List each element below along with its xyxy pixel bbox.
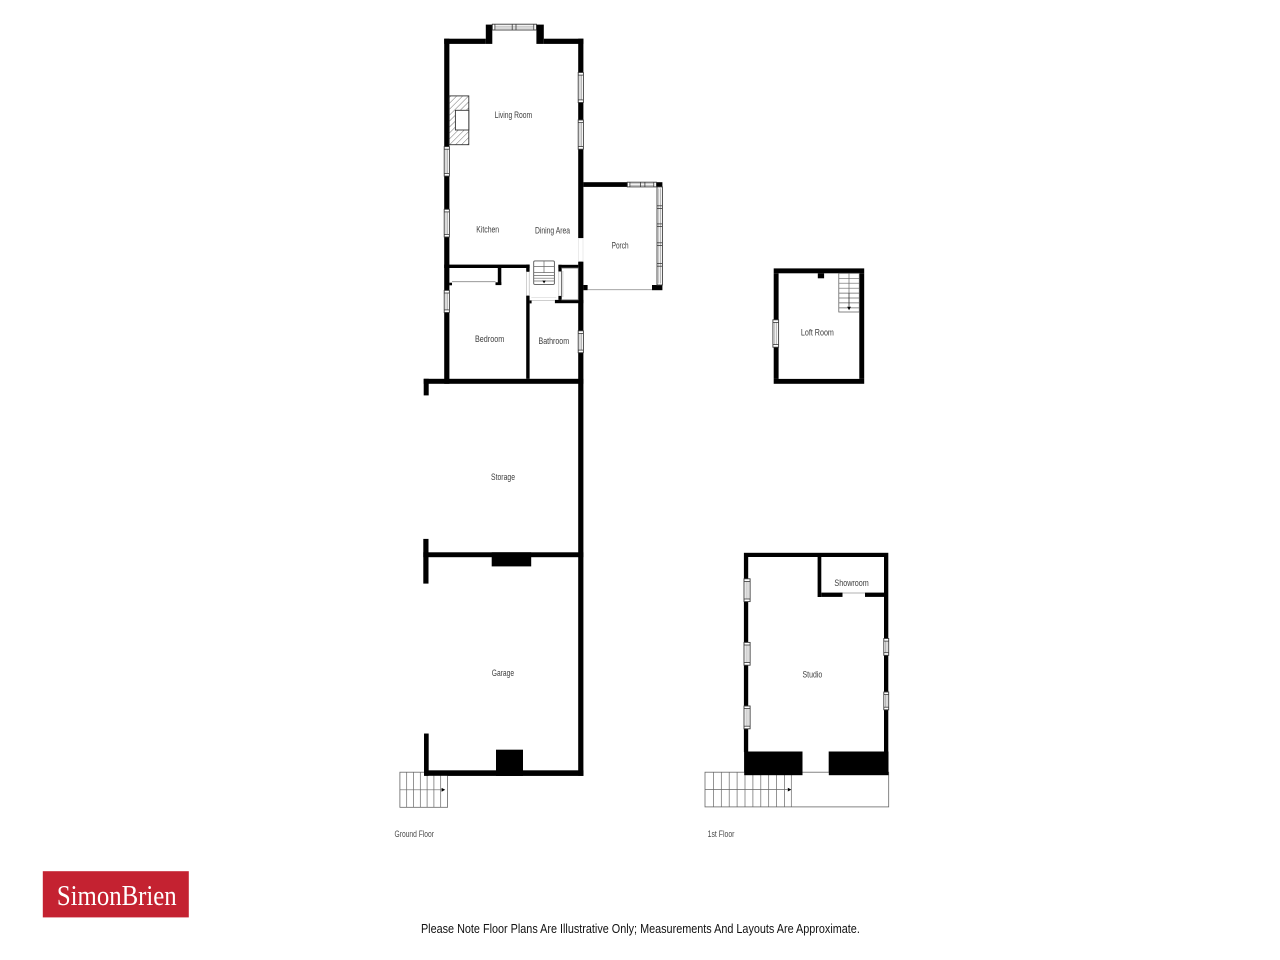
svg-text:Storage: Storage bbox=[491, 472, 515, 482]
svg-text:SimonBrien: SimonBrien bbox=[57, 881, 177, 912]
svg-text:Bathroom: Bathroom bbox=[539, 336, 570, 346]
svg-text:Showroom: Showroom bbox=[834, 578, 868, 588]
svg-text:Dining Area: Dining Area bbox=[535, 226, 570, 236]
svg-text:1st Floor: 1st Floor bbox=[708, 829, 735, 839]
svg-text:Living Room: Living Room bbox=[495, 110, 533, 120]
svg-text:Kitchen: Kitchen bbox=[476, 225, 499, 235]
svg-text:Loft Room: Loft Room bbox=[801, 327, 834, 337]
svg-text:Studio: Studio bbox=[803, 669, 823, 679]
svg-text:Ground Floor: Ground Floor bbox=[395, 829, 435, 839]
svg-text:Bedroom: Bedroom bbox=[475, 334, 504, 344]
svg-text:Garage: Garage bbox=[492, 668, 514, 678]
svg-text:Porch: Porch bbox=[612, 240, 629, 250]
svg-text:Please Note Floor Plans Are Il: Please Note Floor Plans Are Illustrative… bbox=[421, 921, 860, 936]
